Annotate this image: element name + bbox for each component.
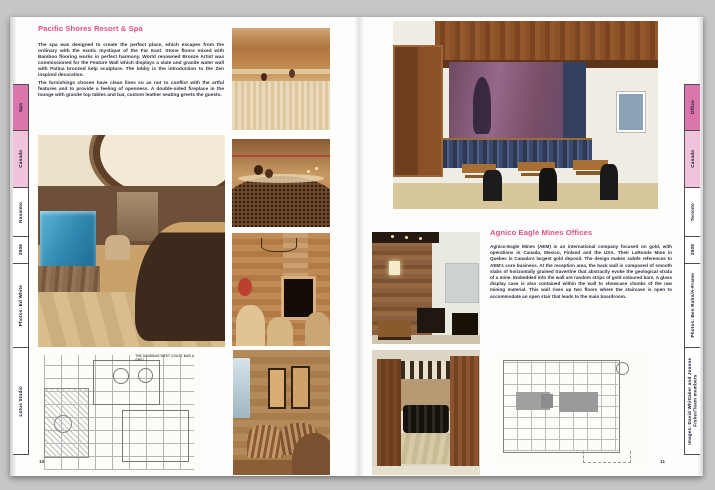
threshold [372, 466, 480, 475]
page-gutter [354, 17, 364, 476]
photo-office-cafeteria [393, 21, 658, 209]
tab-label: Spa [18, 103, 24, 112]
wicker-chair [305, 312, 330, 346]
wood-door-right [450, 356, 479, 469]
right-page-number: 11 [660, 460, 665, 465]
tab-city-left: Nanaimo [13, 187, 29, 236]
photo-spa-lobby-aquarium [38, 135, 225, 347]
tab-label: 2008 [690, 244, 696, 255]
wainscot-band [232, 69, 330, 74]
lounge-chair [247, 425, 284, 458]
tab-category-office: Office [684, 84, 700, 130]
tab-country-left: Canada [13, 130, 29, 187]
mosaic-tub [232, 176, 330, 227]
left-page-number: 10 [39, 460, 44, 465]
tab-photos-right: Photos: Ben Rahn/A-Frame [684, 263, 700, 347]
lounge-chair [105, 235, 129, 260]
wood-floor [401, 433, 451, 464]
right-page-body: Agnico-Eagle Mines (AEM) is an internati… [490, 244, 672, 303]
tab-label: Nanaimo [18, 202, 24, 223]
water-feature-wall [117, 192, 158, 241]
boardroom-chairs [403, 405, 448, 433]
tab-label: 2006 [18, 244, 24, 255]
left-tab-rail: Spa Canada Nanaimo 2006 Photos: Ed White… [13, 84, 29, 455]
wood-door-left [377, 359, 401, 467]
photo-spa-reception [232, 28, 330, 130]
left-paragraph-2: The furnishings chosen have clean lines … [38, 81, 224, 99]
left-paragraph-1: The spa was designed to create the perfe… [38, 43, 224, 78]
tab-year-left: 2006 [13, 236, 29, 263]
framed-art [617, 92, 645, 132]
accent-line [232, 155, 330, 157]
mining-mural [449, 62, 582, 141]
tab-photos-left: Photos: Ed White [13, 263, 29, 347]
wood-ceiling [435, 21, 658, 64]
photo-fireplace-lounge [232, 233, 330, 346]
page-surface: Spa Canada Nanaimo 2006 Photos: Ed White… [10, 17, 703, 476]
plan-core-block [559, 392, 599, 413]
leather-sofa [452, 313, 478, 335]
plan-round-room [616, 362, 629, 375]
person-silhouette [254, 165, 263, 175]
tab-country-right: Canada [684, 130, 700, 187]
tab-label: Office [690, 100, 696, 114]
tab-label: Images: David Whittaker and Joanne Fishe… [687, 350, 698, 452]
plan-core-block [541, 394, 553, 408]
reception-counter [232, 81, 330, 130]
ceiling-beams [401, 361, 451, 379]
tab-label: Photos: Ed White [18, 285, 24, 326]
plan-dashed-extension [583, 451, 631, 463]
tab-label: Canada [690, 150, 696, 168]
cafe-chair [600, 164, 619, 200]
chandelier [261, 238, 296, 253]
candles [315, 167, 318, 170]
flower-arrangement [238, 278, 252, 296]
cafe-chair [539, 168, 558, 202]
tab-label: Toronto [690, 203, 696, 221]
coffee-table [378, 320, 410, 340]
pendant-light [389, 261, 400, 274]
wicker-chair [267, 317, 292, 346]
person-silhouette [473, 77, 492, 133]
plan-round-table [113, 368, 129, 384]
water-edge [238, 174, 324, 183]
cafe-chair [483, 170, 502, 202]
plan-round-table [138, 368, 153, 383]
person-silhouette [289, 69, 295, 78]
tab-label: Canada [18, 150, 24, 168]
floor-area [393, 183, 658, 209]
plan-room-outline [122, 410, 189, 462]
floorplan-right [495, 353, 647, 467]
tab-firm-left: Lotus Studio [13, 347, 29, 455]
photo-hydrotherapy-tub [232, 139, 330, 227]
person-silhouette [261, 73, 267, 81]
aquarium [40, 211, 96, 268]
right-tab-rail: Office Canada Toronto 2008 Photos: Ben R… [684, 84, 700, 455]
photo-relaxation-lounge [233, 350, 330, 475]
tab-city-right: Toronto [684, 187, 700, 236]
left-page-title: Pacific Shores Resort & Spa [38, 24, 143, 33]
floorplan-left: THE SANDBAR WEST COAST BAR & GRILL [38, 350, 200, 475]
right-paragraph-1: Agnico-Eagle Mines (AEM) is an internati… [490, 244, 672, 300]
book-spread: Spa Canada Nanaimo 2006 Photos: Ed White… [0, 0, 715, 490]
reception-desk [445, 263, 479, 303]
left-page-body: The spa was designed to create the perfe… [38, 43, 224, 102]
wicker-chair [236, 305, 265, 346]
framed-art [291, 366, 310, 409]
photo-boardroom-doors [372, 350, 480, 475]
tab-label: Photos: Ben Rahn/A-Frame [690, 273, 696, 338]
ceiling-glow [232, 28, 330, 48]
photo-travertine-reception [372, 232, 480, 344]
framed-art [268, 368, 287, 410]
right-page-title: Agnico Eagle Mines Offices [490, 228, 592, 237]
tab-year-right: 2008 [684, 236, 700, 263]
mural-panel [563, 62, 587, 141]
floorplan-caption: THE SANDBAR WEST COAST BAR & GRILL [135, 354, 197, 362]
tab-label: Lotus Studio [18, 386, 24, 416]
tab-category-spa: Spa [13, 84, 29, 130]
window-light [233, 358, 250, 418]
plan-room-outline [93, 360, 160, 405]
dark-ceiling [372, 232, 439, 243]
wood-doors [393, 45, 443, 177]
leather-sofa [417, 308, 445, 333]
tab-credits-right: Images: David Whittaker and Joanne Fishe… [684, 347, 700, 455]
